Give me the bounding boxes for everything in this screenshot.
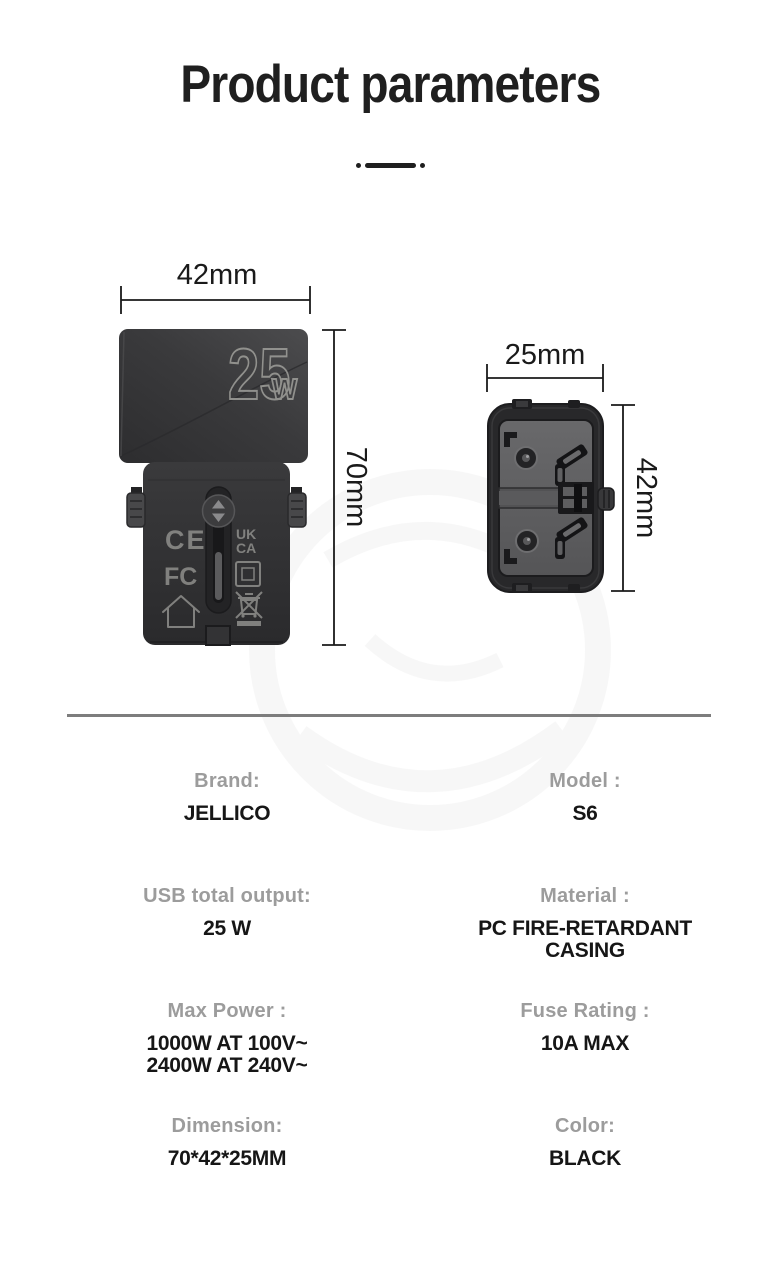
spec-dimension: Dimension: 70*42*25MM — [48, 1115, 406, 1230]
spec-material-value: PC FIRE-RETARDANT CASING — [406, 918, 764, 963]
spec-table: Brand: JELLICO Model : S6 USB total outp… — [48, 713, 764, 1230]
spec-fuse-rating: Fuse Rating : 10A MAX — [406, 1000, 764, 1115]
front-height-dimension-label: 70mm — [340, 447, 372, 528]
spec-model: Model : S6 — [406, 770, 764, 885]
side-height-dimension-label: 42mm — [630, 458, 662, 539]
plug-slider — [203, 487, 235, 613]
spec-model-value: S6 — [406, 803, 764, 825]
side-clip-right — [288, 487, 306, 527]
bottom-notch — [206, 626, 230, 645]
spec-color-label: Color: — [406, 1115, 764, 1137]
spec-material-label: Material : — [406, 885, 764, 907]
front-view-illustration: 42mm 70mm 25 w — [119, 259, 372, 645]
side-width-dimension-label: 25mm — [505, 339, 586, 371]
spec-brand: Brand: JELLICO — [48, 770, 406, 885]
side-width-dimension: 25mm — [487, 339, 603, 392]
spec-color-value: BLACK — [406, 1148, 764, 1170]
wattage-marking: 25 w — [228, 334, 298, 414]
spec-usb-output: USB total output: 25 W — [48, 885, 406, 1000]
spec-color: Color: BLACK — [406, 1115, 764, 1230]
front-width-dimension: 42mm — [121, 259, 310, 314]
screw-top — [515, 447, 537, 469]
fcc-mark-icon: FC — [164, 563, 197, 591]
spec-fuse-rating-label: Fuse Rating : — [406, 1000, 764, 1022]
spec-dimension-value: 70*42*25MM — [48, 1148, 406, 1170]
spec-dimension-label: Dimension: — [48, 1115, 406, 1137]
wattage-unit: w — [271, 366, 298, 408]
spec-material: Material : PC FIRE-RETARDANT CASING — [406, 885, 764, 1000]
spec-max-power-value: 1000W AT 100V~ 2400W AT 240V~ — [48, 1033, 406, 1078]
spec-fuse-rating-value: 10A MAX — [406, 1033, 764, 1055]
front-width-dimension-label: 42mm — [177, 259, 258, 291]
screw-bottom — [516, 530, 538, 552]
spec-brand-value: JELLICO — [48, 803, 406, 825]
latch-knob — [598, 488, 614, 510]
adapter-front-head: 25 w — [119, 329, 308, 463]
ukca-mark-line2: CA — [236, 540, 256, 556]
spec-usb-output-value: 25 W — [48, 918, 406, 940]
spec-model-label: Model : — [406, 770, 764, 792]
weee-bar — [237, 621, 261, 626]
side-clip-left — [127, 487, 145, 527]
side-view-illustration: 25mm 42mm — [487, 339, 662, 593]
spec-usb-output-label: USB total output: — [48, 885, 406, 907]
side-height-dimension: 42mm — [611, 405, 662, 591]
ce-mark-icon: CE — [165, 525, 207, 555]
spec-max-power: Max Power : 1000W AT 100V~ 2400W AT 240V… — [48, 1000, 406, 1115]
front-height-dimension: 70mm — [322, 330, 372, 645]
adapter-front-body: CE UK CA FC — [127, 462, 306, 645]
spec-brand-label: Brand: — [48, 770, 406, 792]
spec-max-power-label: Max Power : — [48, 1000, 406, 1022]
adapter-side-body — [488, 399, 614, 593]
